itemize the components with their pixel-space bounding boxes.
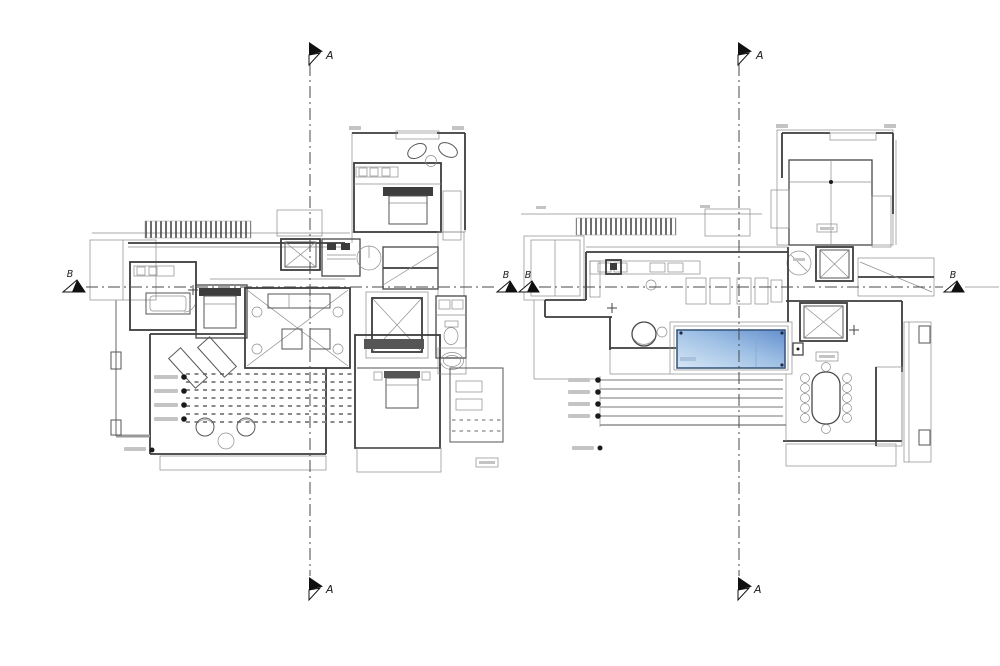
drawing-sheet: A A A A B B [0, 0, 1000, 666]
stairs [531, 240, 580, 296]
dining-table-group [801, 363, 852, 434]
section-label-b: B [950, 270, 957, 281]
side-steps [876, 367, 902, 446]
bed-headboard [199, 288, 241, 296]
section-a-right: A A [738, 42, 764, 600]
left-terrace [111, 300, 352, 470]
dense-louvers [277, 210, 322, 236]
section-label-a: A [325, 49, 334, 62]
lounge-chair [405, 140, 429, 161]
section-b-right: B B [519, 270, 999, 292]
floor-plans-svg: A A A A B B [0, 0, 1000, 666]
dining-terrace [783, 301, 931, 466]
left-side-terrace [450, 368, 503, 467]
garden-steps [786, 444, 896, 466]
pool-label [680, 357, 696, 361]
garden-steps [160, 456, 326, 470]
louver-screen [872, 196, 891, 247]
section-label-b: B [525, 270, 532, 281]
sofa [268, 294, 330, 308]
right-roof-block [771, 130, 896, 247]
dense-louvers [705, 209, 750, 236]
armchair [237, 418, 255, 436]
stair-core [322, 239, 381, 276]
floor-plan-right [521, 124, 934, 466]
pergola-louvers [576, 218, 676, 235]
section-marker-b: B [63, 269, 85, 292]
side-table [426, 156, 437, 167]
left-exterior-stairs [90, 240, 156, 300]
chair [252, 307, 262, 317]
chair [252, 344, 262, 354]
chair [333, 344, 343, 354]
bed-headboard [384, 371, 420, 378]
left-roof-block [352, 131, 465, 296]
seating [686, 278, 706, 304]
section-label-b: B [503, 270, 510, 281]
bathtub-oval [441, 353, 464, 370]
toilet [444, 328, 458, 345]
wardrobe [364, 339, 424, 349]
section-label-a: A [755, 49, 764, 62]
bathroom [130, 262, 196, 330]
section-marker-a: A [309, 577, 334, 600]
section-label-a: A [753, 583, 762, 596]
sun-lounger [198, 337, 237, 377]
left-pergola [92, 210, 350, 238]
bedroom [196, 285, 247, 338]
section-marker-a: A [309, 42, 334, 65]
pergola-louvers [145, 221, 251, 238]
garden-steps [357, 448, 441, 472]
pool-water [677, 330, 785, 368]
armchair [196, 418, 214, 436]
bed [389, 196, 427, 224]
section-marker-a: A [738, 42, 764, 65]
section-label-a: A [325, 583, 334, 596]
skylight [800, 303, 847, 341]
lounge-chair [436, 140, 460, 161]
section-label-b: B [67, 269, 74, 280]
section-marker-b: B [944, 270, 964, 292]
section-marker-a: A [738, 577, 762, 600]
coffee-table [310, 329, 330, 349]
left-guest-suite [355, 335, 466, 472]
bed [386, 378, 418, 408]
seating [771, 280, 782, 302]
stool [646, 280, 656, 290]
outdoor-furniture [456, 399, 482, 410]
dining-table [812, 372, 840, 424]
louver-screen [443, 191, 461, 240]
living-room [245, 288, 350, 368]
seating [710, 278, 730, 304]
section-marker-b: B [497, 270, 517, 292]
bath-counter [356, 167, 398, 177]
right-garden-deck [568, 376, 786, 451]
round-table [632, 322, 656, 346]
main-stairs [383, 247, 438, 289]
section-a-left: A A [309, 42, 334, 600]
seating [755, 278, 768, 304]
outdoor-furniture [456, 381, 482, 392]
chair [657, 327, 667, 337]
bed [204, 296, 236, 328]
round-table [218, 433, 234, 449]
bed-headboard [383, 187, 433, 196]
section-marker-b: B [519, 270, 539, 292]
floor-plan-left [90, 126, 503, 472]
right-core [787, 247, 934, 322]
chair [333, 307, 343, 317]
